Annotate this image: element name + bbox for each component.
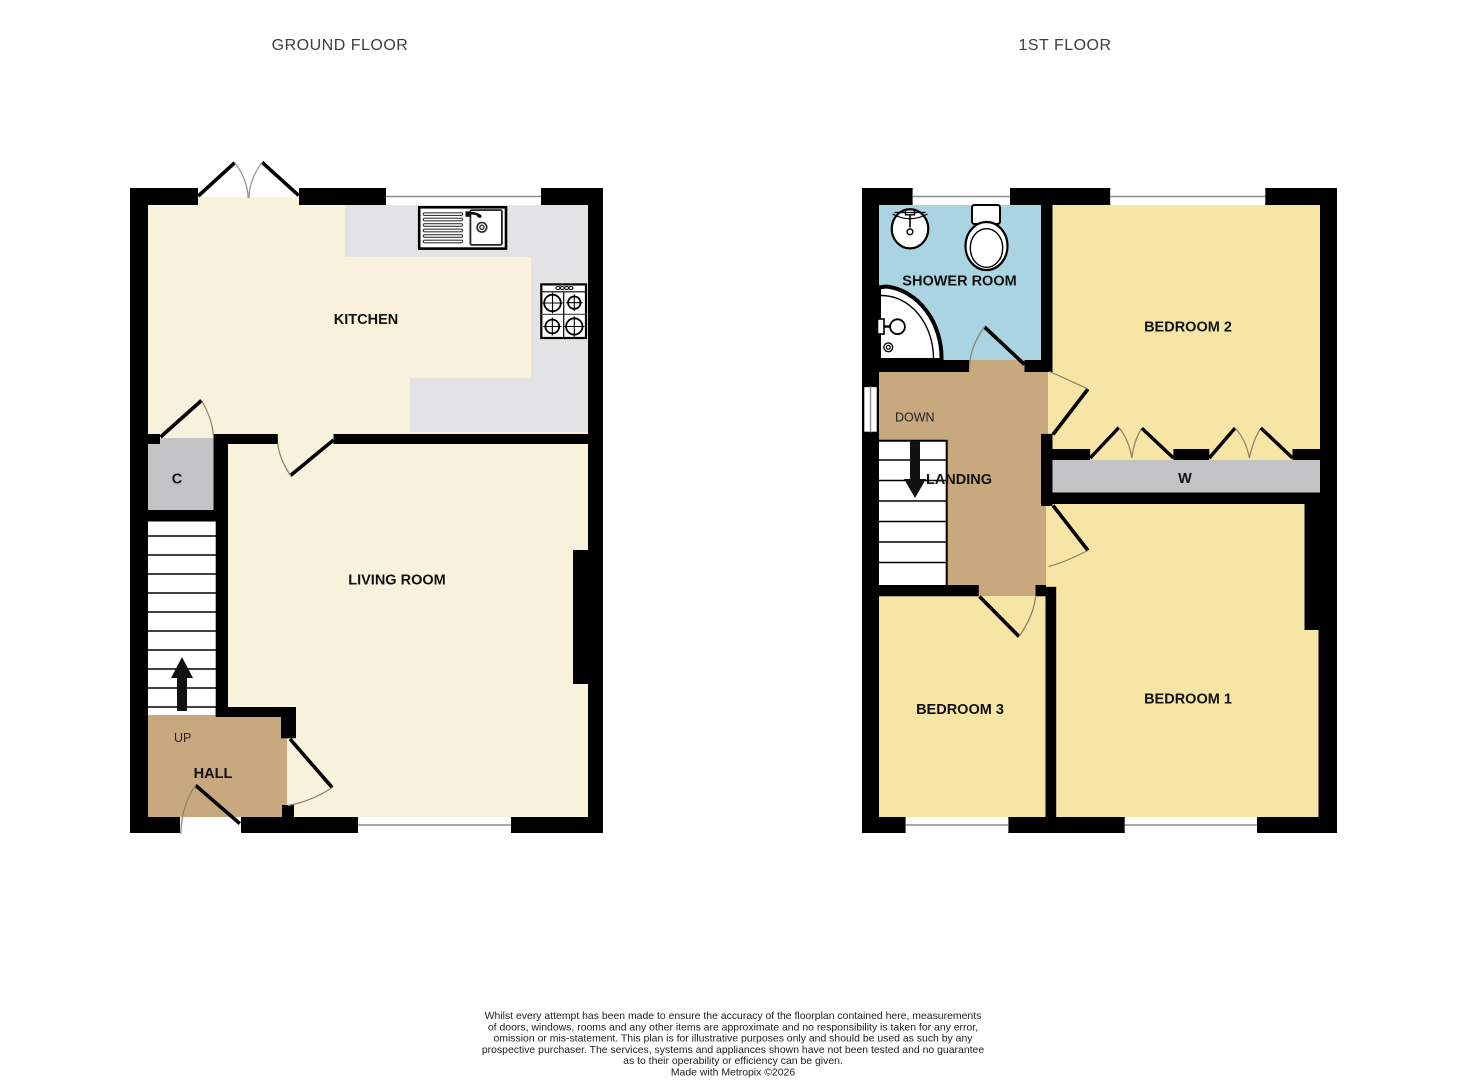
svg-text:C: C xyxy=(172,472,183,488)
svg-text:GROUND FLOOR: GROUND FLOOR xyxy=(272,37,409,54)
svg-text:DOWN: DOWN xyxy=(895,410,935,424)
svg-text:Made with Metropix ©2026: Made with Metropix ©2026 xyxy=(671,1068,795,1079)
svg-text:as to their operability or eff: as to their operability or efficiency ca… xyxy=(623,1056,843,1067)
svg-text:KITCHEN: KITCHEN xyxy=(334,312,398,328)
svg-text:BEDROOM 2: BEDROOM 2 xyxy=(1144,320,1232,336)
svg-text:1ST FLOOR: 1ST FLOOR xyxy=(1018,37,1111,54)
svg-text:SHOWER ROOM: SHOWER ROOM xyxy=(902,274,1016,290)
svg-text:omission or mis-statement. Thi: omission or mis-statement. This plan is … xyxy=(493,1034,973,1045)
svg-text:W: W xyxy=(1178,471,1192,487)
svg-text:UP: UP xyxy=(174,731,191,745)
svg-text:LIVING ROOM: LIVING ROOM xyxy=(348,573,445,589)
svg-text:Whilst every attempt has been: Whilst every attempt has been made to en… xyxy=(485,1011,982,1022)
svg-text:LANDING: LANDING xyxy=(926,472,992,488)
svg-text:BEDROOM 1: BEDROOM 1 xyxy=(1144,692,1232,708)
svg-text:prospective purchaser. The ser: prospective purchaser. The services, sys… xyxy=(482,1045,984,1056)
svg-text:of doors, windows, rooms and a: of doors, windows, rooms and any other i… xyxy=(488,1022,978,1033)
svg-text:HALL: HALL xyxy=(194,766,233,782)
svg-text:BEDROOM 3: BEDROOM 3 xyxy=(916,702,1004,718)
